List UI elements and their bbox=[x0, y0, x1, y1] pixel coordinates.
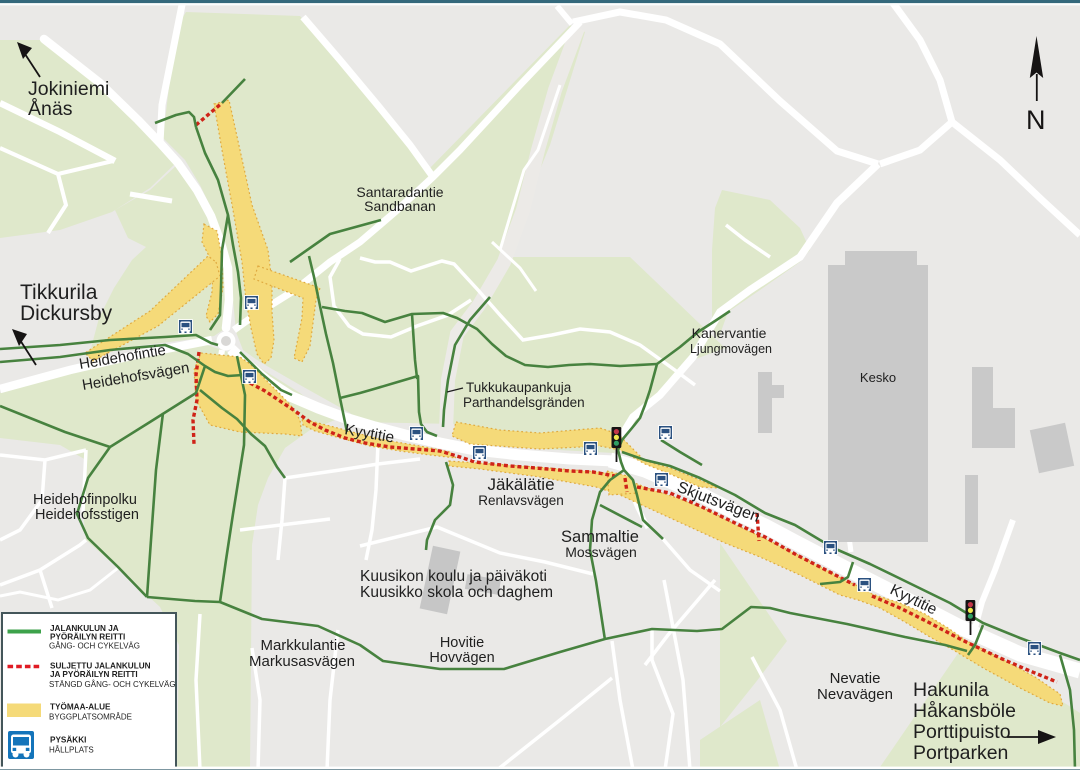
svg-text:Portparken: Portparken bbox=[913, 742, 1008, 764]
svg-text:Markusasvägen: Markusasvägen bbox=[249, 653, 355, 670]
svg-text:TYÖMAA-ALUE: TYÖMAA-ALUE bbox=[50, 702, 111, 712]
svg-text:Ånäs: Ånäs bbox=[28, 97, 73, 120]
svg-text:Hakunila: Hakunila bbox=[913, 679, 989, 701]
svg-text:PYÖRÄILYN REITTI: PYÖRÄILYN REITTI bbox=[50, 632, 125, 642]
svg-text:BYGGPLATSOMRÅDE: BYGGPLATSOMRÅDE bbox=[49, 713, 132, 722]
svg-text:N: N bbox=[1026, 105, 1046, 135]
svg-text:Tikkurila: Tikkurila bbox=[20, 281, 98, 304]
svg-text:Nevavägen: Nevavägen bbox=[817, 686, 893, 703]
svg-text:HÅLLPLATS: HÅLLPLATS bbox=[49, 746, 94, 755]
svg-text:PYSÄKKI: PYSÄKKI bbox=[50, 735, 86, 745]
svg-text:GÅNG- OCH CYKELVÄG: GÅNG- OCH CYKELVÄG bbox=[49, 642, 140, 651]
svg-text:Renlavsvägen: Renlavsvägen bbox=[478, 493, 564, 508]
svg-text:Tukkukaupankuja: Tukkukaupankuja bbox=[466, 380, 572, 395]
svg-text:JA PYÖRÄILYN REITTI: JA PYÖRÄILYN REITTI bbox=[50, 669, 138, 679]
svg-text:Kanervantie: Kanervantie bbox=[692, 325, 767, 341]
svg-text:Ljungmovägen: Ljungmovägen bbox=[690, 342, 772, 356]
svg-text:Mossvägen: Mossvägen bbox=[565, 544, 637, 560]
svg-text:Jokiniemi: Jokiniemi bbox=[28, 78, 109, 100]
svg-text:Heidehofsstigen: Heidehofsstigen bbox=[35, 507, 139, 523]
svg-text:STÄNGD GÅNG- OCH CYKELVÄG: STÄNGD GÅNG- OCH CYKELVÄG bbox=[49, 680, 176, 689]
svg-text:Sandbanan: Sandbanan bbox=[364, 198, 436, 214]
svg-text:Parthandelsgränden: Parthandelsgränden bbox=[463, 395, 585, 410]
svg-text:Jäkälätie: Jäkälätie bbox=[487, 475, 554, 494]
svg-text:Kuusikko skola och daghem: Kuusikko skola och daghem bbox=[360, 584, 553, 601]
svg-text:Heidehofinpolku: Heidehofinpolku bbox=[33, 492, 137, 508]
svg-text:Dickursby: Dickursby bbox=[20, 302, 113, 325]
svg-text:Håkansböle: Håkansböle bbox=[913, 700, 1016, 722]
svg-text:Hovitie: Hovitie bbox=[440, 635, 484, 651]
svg-text:Hovvägen: Hovvägen bbox=[429, 650, 494, 666]
svg-text:Kesko: Kesko bbox=[860, 370, 896, 385]
svg-text:Nevatie: Nevatie bbox=[830, 670, 881, 687]
svg-text:Kuusikon koulu ja päiväkoti: Kuusikon koulu ja päiväkoti bbox=[360, 568, 547, 585]
svg-text:Markkulantie: Markkulantie bbox=[260, 637, 345, 654]
svg-text:Porttipuisto: Porttipuisto bbox=[913, 721, 1011, 743]
